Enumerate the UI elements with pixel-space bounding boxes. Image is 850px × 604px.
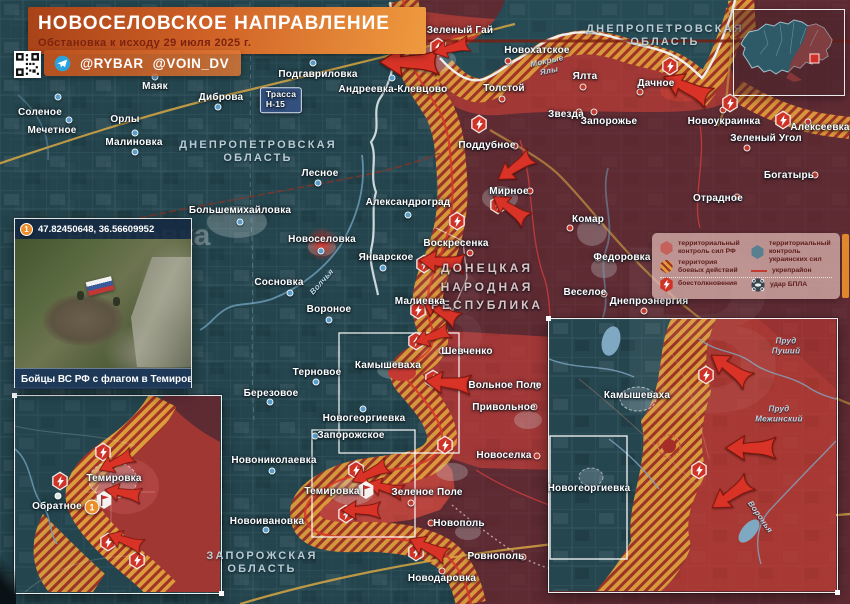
town-label: Терновое	[293, 367, 342, 379]
town-label: Камышеваха	[355, 360, 421, 372]
region-label: ЗАПОРОЖСКАЯ ОБЛАСТЬ	[206, 550, 317, 576]
town-label: Соленое	[18, 107, 62, 119]
telegram-handle-rybar: @RYBAR	[80, 56, 144, 71]
town-label: Диброва	[199, 92, 244, 104]
telegram-icon	[54, 55, 71, 72]
town-label: Звезда	[548, 109, 584, 121]
legend-item: территория боевых действий	[660, 259, 741, 275]
town-label: Зеленое Поле	[391, 487, 462, 499]
town-label: Березовое	[244, 388, 299, 400]
corner-shadow	[0, 548, 16, 604]
soldier-figure	[77, 291, 84, 300]
uav-strike-icon	[751, 278, 765, 292]
town-label: Новодаровка	[408, 573, 476, 585]
town-label: Шевченко	[441, 346, 492, 358]
town-label: Январское	[359, 252, 414, 264]
town-label: Малиевка	[395, 296, 445, 308]
legend-item: территориальный контроль сил РФ	[660, 240, 741, 256]
photo-coordinates: 47.82450648, 36.56609952	[38, 224, 154, 235]
town-label: Маяк	[142, 81, 168, 93]
town-label: Пруд Пуший	[772, 336, 801, 355]
inset-town-label: Обратное	[32, 501, 82, 513]
town-label: Новониколаевка	[231, 455, 316, 467]
town-label: Новоивановка	[230, 516, 304, 528]
clash-icon	[660, 277, 673, 292]
town-label: Мирное	[489, 186, 529, 198]
rf-control-swatch	[660, 241, 673, 255]
town-label: Пруд Межинский	[755, 404, 803, 423]
combat-zone-swatch	[660, 260, 673, 274]
town-label: Комар	[572, 214, 604, 226]
map-title: НОВОСЕЛОВСКОЕ НАПРАВЛЕНИЕ	[38, 13, 426, 35]
town-label: Новоукраинка	[688, 116, 761, 128]
town-label: Дачное	[637, 78, 674, 90]
town-label: Андреевка-Клевцово	[339, 84, 448, 96]
russian-flag	[86, 276, 115, 296]
credits-bar: @RYBAR @VOIN_DV	[44, 50, 241, 76]
legend-separator	[660, 277, 832, 278]
town-label: Богатырь	[764, 170, 814, 182]
legend-item: укрепрайон	[751, 267, 832, 275]
photo-caption: Бойцы ВС РФ с флагом в Темировке	[15, 368, 191, 389]
legend-item: боестолкновения	[660, 277, 741, 292]
town-label: Зеленый Гай	[427, 25, 494, 37]
photo-marker-badge: 1	[20, 223, 33, 236]
town-label: Мечетное	[27, 125, 76, 137]
ukraine-locator-inset	[733, 9, 845, 96]
photo-header: 1 47.82450648, 36.56609952	[15, 219, 191, 239]
region-label: ДНЕПРОПЕТРОВСКАЯ ОБЛАСТЬ	[586, 23, 744, 49]
town-label: Большемихайловка	[189, 205, 291, 217]
town-label: Отрадное	[693, 193, 743, 205]
ua-control-swatch	[751, 245, 764, 259]
town-label: Алексеевка	[790, 122, 849, 134]
inset-town-label: Темировка	[86, 473, 141, 485]
qr-code	[14, 51, 41, 78]
legend-item: удар БПЛА	[751, 278, 832, 292]
telegram-handle-voin-dv: @VOIN_DV	[153, 56, 229, 71]
legend-item: территориальный контроль украинских сил	[751, 240, 832, 264]
dirt-patch	[43, 294, 123, 346]
fortified-line-swatch	[751, 270, 767, 272]
soldier-figure	[113, 297, 120, 306]
town-label: Волчья	[308, 267, 336, 297]
town-label: Зеленый Угол	[730, 133, 802, 145]
title-banner: НОВОСЕЛОВСКОЕ НАПРАВЛЕНИЕ Обстановка к и…	[28, 7, 426, 54]
town-label: Подгавриловка	[278, 69, 357, 81]
map-subtitle: Обстановка к исходу 29 июля 2025 г.	[38, 37, 426, 49]
town-label: Ялта	[573, 71, 598, 83]
town-label: Толстой	[483, 83, 525, 95]
town-label: Воскресенка	[423, 238, 488, 250]
accent-bar	[842, 234, 849, 298]
town-label: Новоселовка	[288, 234, 356, 246]
region-label: ДОНЕЦКАЯ НАРОДНАЯ РЕСПУБЛИКА	[431, 259, 543, 315]
town-label: Новогеоргиевка	[323, 413, 406, 425]
drone-photo	[15, 239, 191, 368]
town-label: Воронья	[746, 499, 775, 535]
town-label: Веселое	[563, 287, 606, 299]
town-label: Новоселка	[476, 450, 531, 462]
town-label: Ровнополь	[467, 551, 524, 563]
town-label: Александроград	[366, 197, 451, 209]
region-label: ДНЕПРОПЕТРОВСКАЯ ОБЛАСТЬ	[179, 139, 337, 165]
town-label: Новополь	[433, 518, 484, 530]
road-sign-h15: Трасса Н-15	[260, 87, 302, 113]
town-label: Темировка	[304, 486, 359, 498]
town-label: Вольное Поле	[468, 380, 541, 392]
map-screenshot-root: ТемировкаЗВ	[0, 0, 850, 604]
photo-inset: 1 47.82450648, 36.56609952 Бойцы ВС РФ с…	[14, 218, 192, 388]
town-label: Привольное	[472, 402, 536, 414]
town-label: Лесное	[302, 168, 339, 180]
current-area-marker	[810, 54, 819, 63]
town-label: Запорожье	[581, 116, 638, 128]
legend-panel: территориальный контроль сил РФ территор…	[652, 233, 840, 299]
town-label: Вороное	[307, 304, 352, 316]
town-label: Малиновка	[105, 137, 162, 149]
town-label: Сосновка	[254, 277, 303, 289]
inset-town-label: Камышеваха	[604, 390, 670, 402]
ruined-building	[131, 257, 191, 367]
town-label: Поддубное	[458, 140, 515, 152]
town-label: Федоровка	[593, 252, 650, 264]
inset-town-label: Новогеоргиевка	[548, 483, 631, 495]
town-label: Запорожское	[317, 430, 384, 442]
town-label: Орлы	[110, 114, 139, 126]
